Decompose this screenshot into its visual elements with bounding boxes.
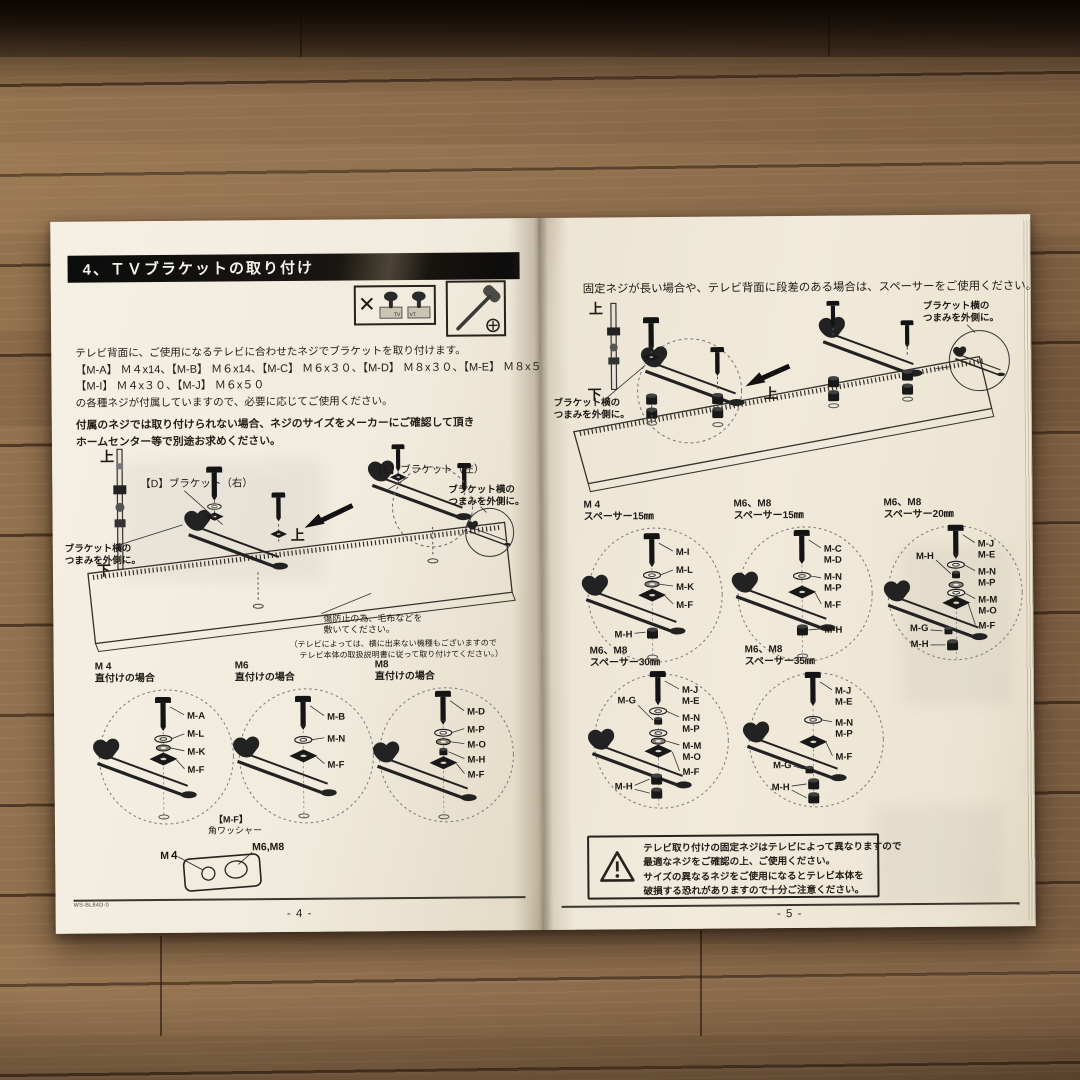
svg-text:M-F: M-F [327,760,344,771]
knob-note-right-1: ブラケット横の [448,483,515,496]
svg-text:M-I: M-I [676,547,690,558]
svg-text:M-H: M-H [615,781,633,792]
page-number-4: - 4 - [56,906,544,922]
tv-mounting-diagram: 上 下 [52,440,541,672]
svg-text:M-F: M-F [683,767,700,778]
svg-text:M-J: M-J [978,538,994,549]
svg-text:M-L: M-L [676,565,693,576]
svg-text:TV: TV [394,312,401,318]
svg-text:M-N: M-N [835,718,853,729]
protect-note-2: 敷いてください。 [323,623,395,635]
screwdriver-iconbox [446,280,506,336]
svg-text:M-E: M-E [835,697,853,708]
svg-text:上: 上 [764,385,778,401]
svg-text:M-N: M-N [682,713,700,724]
svg-text:M-F: M-F [824,600,841,611]
plank-tint [0,944,1080,1036]
bracket-e-label: 【E】ブラケット（左） [372,462,484,476]
up-arrow-label: 上 [291,527,305,543]
svg-text:M-E: M-E [682,696,700,707]
svg-text:M-P: M-P [824,583,842,594]
exploded-m4-spacer15: M 4スペーサー15㎜ M-I M-L M-K M-F M-H [579,499,732,668]
exploded-m6m8-spacer20: M6、M8スペーサー20㎜ M-J M-E M-N M-P [879,496,1032,665]
svg-text:M-P: M-P [682,724,700,735]
warning-triangle-icon [599,850,635,884]
svg-text:つまみを外側に。: つまみを外側に。 [554,408,630,421]
exploded-m4-direct: M 4直付けの場合 M-A M-L M-K M-F [91,660,244,829]
page-left: 4、ＴＶブラケットの取り付け ✕ TV TV [50,218,544,934]
protect-note-1: 傷防止の為、毛布などを [323,612,422,624]
svg-text:M-N: M-N [978,566,996,577]
svg-text:M-H: M-H [824,625,842,636]
svg-text:M-F: M-F [468,769,485,780]
manual-booklet: 4、ＴＶブラケットの取り付け ✕ TV TV [50,214,1036,934]
phillips-screwdriver-icon [448,282,504,334]
svg-text:M-P: M-P [978,577,996,588]
tv-note-1: （テレビによっては、横に出来ない機種もございますので [290,637,497,649]
svg-text:M４: M４ [160,850,179,862]
spacer-intro: 固定ネジが長い場合や、テレビ背面に段差のある場合は、スペーサーをご使用ください。 [583,278,1037,298]
svg-text:つまみを外側に。: つまみを外側に。 [923,311,999,324]
svg-text:M-H: M-H [916,551,934,562]
svg-text:M-K: M-K [187,747,205,758]
svg-text:M-J: M-J [682,685,698,696]
svg-text:M-L: M-L [187,729,204,740]
svg-text:M-O: M-O [682,752,701,763]
svg-text:M-F: M-F [676,600,693,611]
page-right: 固定ネジが長い場合や、テレビ背面に段差のある場合は、スペーサーをご使用ください。… [538,214,1036,930]
plank-seam [700,930,702,1036]
svg-text:TV: TV [409,312,416,318]
svg-text:M-G: M-G [910,623,929,634]
svg-text:M-F: M-F [187,765,204,776]
svg-text:【M-F】: 【M-F】 [214,814,248,824]
svg-text:M-F: M-F [978,620,995,631]
svg-text:M-H: M-H [467,754,485,765]
tv-panel-outline [573,356,992,483]
svg-text:M-B: M-B [327,712,345,723]
knob-note-left-2: つまみを外側に。 [65,554,141,567]
bracket-on-tv-icon: TV [378,289,404,321]
spacer-mounting-diagram: 上 下 [539,296,1033,512]
footer-rule [74,896,526,902]
svg-text:M-H: M-H [911,639,929,650]
svg-text:M-G: M-G [773,760,792,771]
page-number-5: - 5 - [544,906,1036,922]
svg-text:M-O: M-O [467,739,486,750]
svg-text:M-A: M-A [187,711,205,722]
svg-text:M-N: M-N [327,734,345,745]
svg-text:M-E: M-E [978,549,996,560]
svg-text:M-P: M-P [835,729,853,740]
section-title: 4、ＴＶブラケットの取り付け [83,257,315,280]
square-washer-figure: 【M-F】 角ワッシャー M４ M6,M8 [152,812,313,893]
svg-text:M-M: M-M [682,741,701,752]
plank-seam [828,0,830,57]
svg-text:M-G: M-G [617,695,636,706]
caution-box: テレビ取り付けの固定ネジはテレビによって異なりますので 最適なネジをご確認の上、… [587,833,879,899]
caution-text: テレビ取り付けの固定ネジはテレビによって異なりますので 最適なネジをご確認の上、… [643,840,902,898]
svg-text:M-P: M-P [467,724,485,735]
screw-note: の各種ネジが付属していますので、必要に応じてご使用ください。 [76,391,553,411]
svg-text:M-D: M-D [467,706,485,717]
exploded-m6-direct: M6直付けの場合 M-B M-N M-F [231,659,384,828]
exploded-m8-direct: M8直付けの場合 M-D M-P M-O M-H M-F [371,658,524,827]
exploded-m6m8-spacer35: M6、M8スペーサー35㎜ M-J M-E M-N M-P M-F M-G [741,643,894,812]
wrong-mount-iconbox: ✕ TV TV [354,285,436,326]
exploded-m6m8-spacer15: M6、M8スペーサー15㎜ M-C M-D M-N M-P M-F M-H [729,497,882,666]
svg-text:上: 上 [589,301,603,317]
photo-of-manual: { "left_page": { "header": "4、ＴＶブラケットの取り… [0,0,1080,1080]
exploded-m6m8-spacer30: M6、M8スペーサー30㎜ M-J M-E M-N M-P [586,644,739,813]
svg-text:M6,M8: M6,M8 [252,841,284,853]
svg-text:M-H: M-H [772,782,790,793]
knob-note-right-2: つまみを外側に。 [448,495,524,508]
purchase-warning-line1: 付属のネジでは取り付けられない場合、ネジのサイズをメーカーにご確認して頂き [76,415,475,435]
svg-text:M-K: M-K [676,582,694,593]
svg-text:M-F: M-F [835,752,852,763]
x-mark-icon: ✕ [358,295,376,315]
svg-text:ブラケット横の: ブラケット横の [554,396,621,409]
svg-text:角ワッシャー: 角ワッシャー [208,824,262,835]
bracket-d-label: 【D】ブラケット（右） [140,476,253,490]
svg-text:M-N: M-N [824,572,842,583]
svg-text:ブラケット横の: ブラケット横の [923,299,990,312]
plank-seam [300,0,302,57]
document-code: WS-BL84D-0 [74,902,109,908]
svg-text:M-C: M-C [824,544,842,555]
plank-seam [160,936,162,1036]
intro-paragraph: テレビ背面に、ご使用になるテレビに合わせたネジでブラケットを取り付けます。 【M… [75,342,553,412]
floor-shadow-band [0,0,1080,57]
bracket-on-tv-icon: TV [406,289,432,321]
svg-text:M-O: M-O [978,605,997,616]
svg-text:M-D: M-D [824,555,842,566]
svg-text:上: 上 [100,448,114,464]
svg-text:M-M: M-M [978,594,997,605]
section-header-bar: 4、ＴＶブラケットの取り付け [67,252,519,283]
svg-text:M-H: M-H [614,629,632,640]
svg-text:M-J: M-J [835,686,851,697]
